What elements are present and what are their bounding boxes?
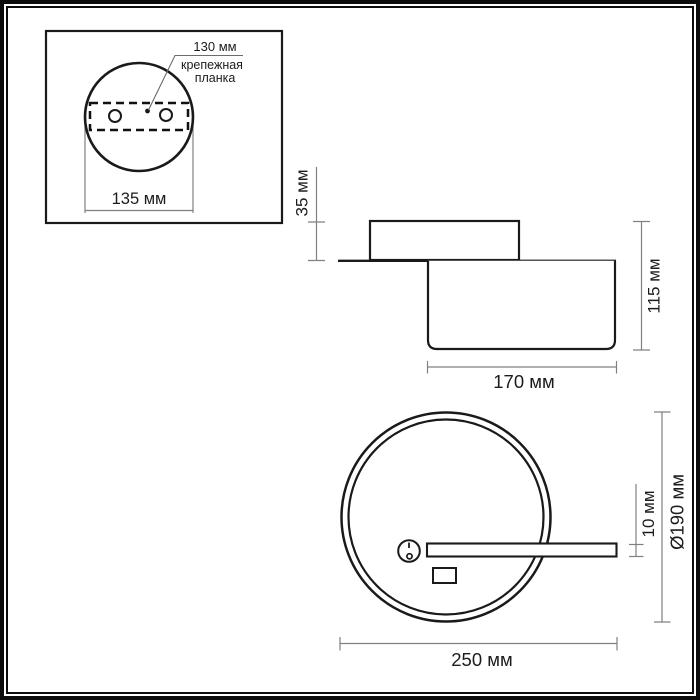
dim-250: 250 мм [340, 637, 617, 670]
top-view-inset: 130 мм крепежная планка 135 мм [46, 31, 282, 223]
front-view: 10 мм Ø190 мм 250 мм [340, 412, 688, 670]
drawing-svg: 130 мм крепежная планка 135 мм 35 мм 115… [0, 0, 700, 700]
label-body-width: 170 мм [493, 371, 554, 392]
side-view: 35 мм 115 мм 170 мм [293, 167, 664, 392]
label-ring-diameter: Ø190 мм [667, 474, 688, 550]
canopy-rect [370, 221, 519, 260]
mounting-plate-dashed [90, 103, 188, 130]
label-total-width: 250 мм [451, 649, 512, 670]
lamp-body-side [428, 261, 615, 349]
dim-35: 35 мм [293, 167, 326, 261]
driver-box [433, 568, 456, 583]
dim-170: 170 мм [428, 361, 617, 392]
ring-outer-circle [342, 413, 551, 622]
dim-115: 115 мм [633, 222, 664, 351]
dim-10: 10 мм [629, 484, 658, 557]
dimension-drawing: 130 мм крепежная планка 135 мм 35 мм 115… [0, 0, 700, 700]
label-base-width: 135 мм [112, 190, 167, 208]
label-bar-height: 10 мм [639, 490, 658, 537]
label-total-height: 115 мм [645, 258, 664, 313]
label-bracket-line1: крепежная [181, 58, 243, 72]
light-bar [427, 544, 617, 557]
label-canopy-height: 35 мм [293, 169, 312, 216]
dim-diameter: Ø190 мм [654, 412, 688, 622]
label-mount-spacing: 130 мм [193, 39, 236, 54]
label-bracket-line2: планка [195, 71, 236, 85]
